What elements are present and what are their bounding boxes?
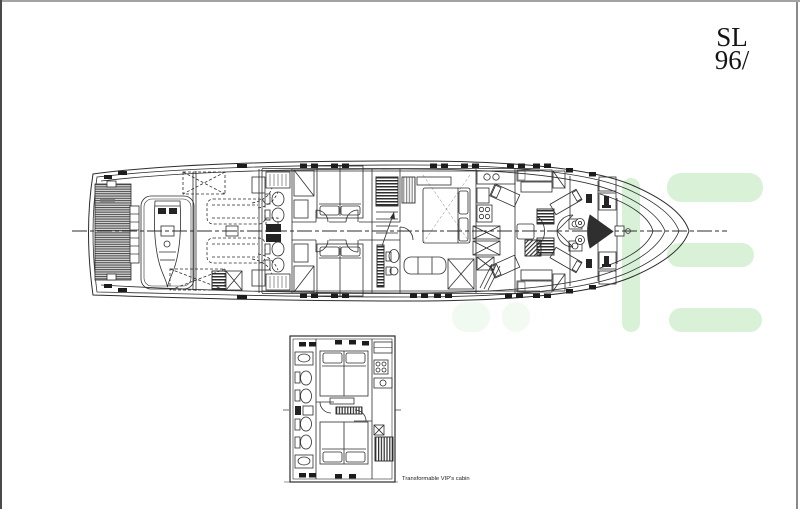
platform-label-smudge xyxy=(100,199,115,203)
inset-right-column xyxy=(374,342,393,461)
watermark-blob-2 xyxy=(502,302,530,332)
inset-label: Transformable VIP's cabin xyxy=(402,476,470,482)
guest-cabin-port xyxy=(294,166,363,218)
deck-plan-canvas: Transformable VIP's cabin xyxy=(0,0,800,509)
transom-ladder xyxy=(130,206,139,263)
chain-locker xyxy=(588,215,614,248)
watermark-bottom-bar xyxy=(669,308,762,332)
guest-cabin-starboard xyxy=(294,244,363,296)
engine-starboard xyxy=(207,238,265,263)
swim-platform xyxy=(95,171,139,292)
inset-beds xyxy=(316,351,372,464)
watermark-top-bar xyxy=(667,173,763,202)
engine-port xyxy=(207,199,265,224)
stove xyxy=(477,205,492,222)
watermark-blob-1 xyxy=(452,302,490,332)
inset-bathroom-fixtures xyxy=(295,352,313,468)
inset-plan xyxy=(283,336,402,482)
tender-boat xyxy=(154,201,180,287)
crew-mess-table xyxy=(517,224,534,239)
vip-cabin xyxy=(402,169,476,293)
vip-sofa xyxy=(404,257,446,274)
